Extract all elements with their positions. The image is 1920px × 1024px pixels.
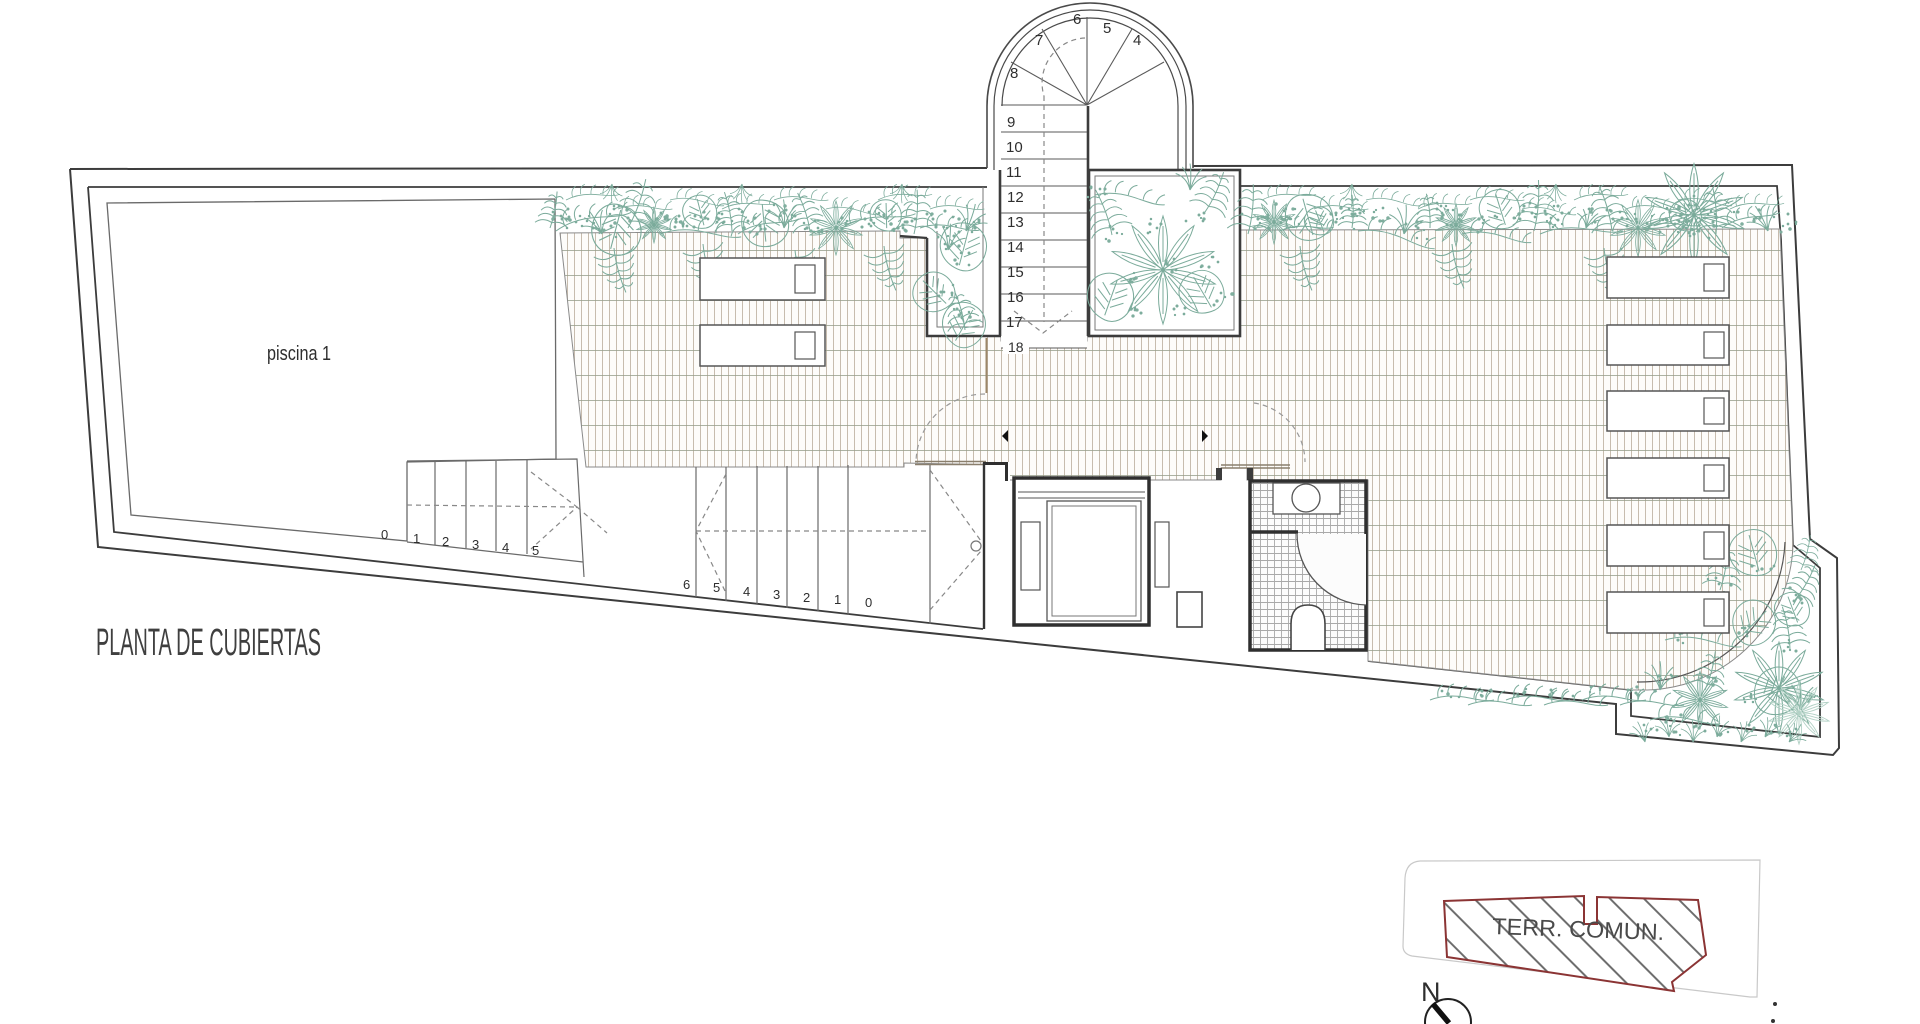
svg-text:piscina 1: piscina 1 [267,343,331,365]
svg-text:5: 5 [1103,20,1111,37]
svg-text:9: 9 [1007,114,1015,131]
svg-text:5: 5 [532,543,539,558]
svg-text:8: 8 [1010,65,1018,82]
svg-text:2: 2 [803,590,810,605]
svg-text:18: 18 [1008,339,1024,355]
svg-text:6: 6 [1073,11,1081,28]
svg-text:1: 1 [413,531,420,546]
svg-text:13: 13 [1007,214,1024,231]
svg-text:1: 1 [834,592,841,607]
svg-text:7: 7 [1035,32,1043,49]
svg-text:4: 4 [743,584,750,599]
svg-text:11: 11 [1006,164,1022,181]
svg-text:16: 16 [1007,289,1024,306]
svg-text:4: 4 [502,540,509,555]
svg-text:6: 6 [683,577,690,592]
svg-text:15: 15 [1007,264,1024,281]
svg-text:5: 5 [713,580,720,595]
svg-text:4: 4 [1133,32,1141,49]
svg-text:2: 2 [442,534,449,549]
svg-text:14: 14 [1007,239,1024,256]
svg-text:12: 12 [1007,189,1024,206]
svg-text:17: 17 [1006,314,1023,331]
svg-text:3: 3 [472,537,479,552]
svg-text:PLANTA DE CUBIERTAS: PLANTA DE CUBIERTAS [96,622,321,664]
svg-text:3: 3 [773,587,780,602]
svg-text:10: 10 [1006,139,1023,156]
svg-text:0: 0 [865,595,872,610]
svg-text:0: 0 [381,527,388,542]
